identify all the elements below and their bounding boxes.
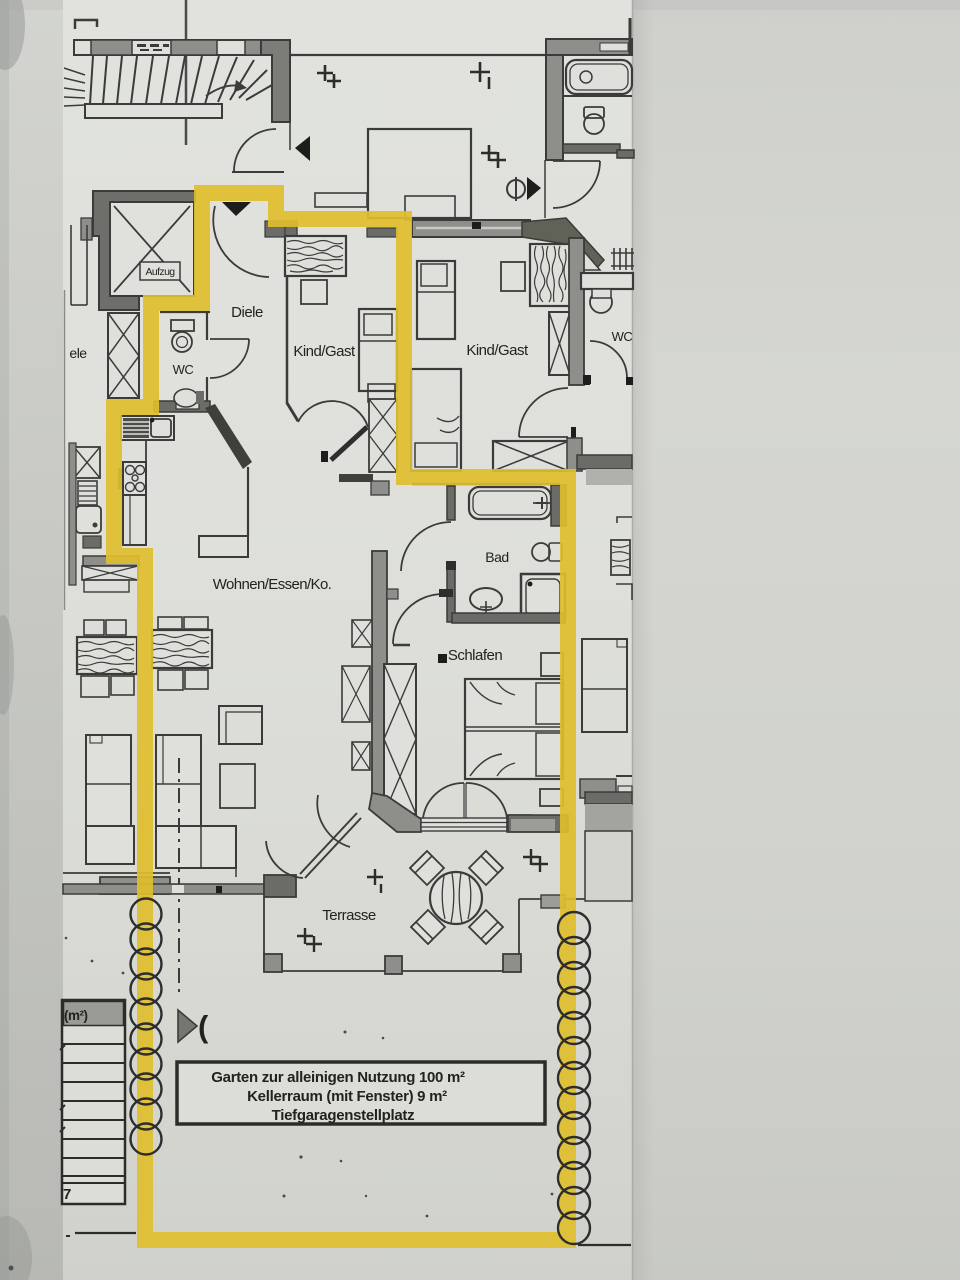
svg-text:Diele: Diele xyxy=(231,304,263,321)
svg-text:WC: WC xyxy=(173,362,194,377)
svg-text:Bad: Bad xyxy=(485,549,508,565)
svg-text:WC: WC xyxy=(612,329,633,344)
svg-text:ele: ele xyxy=(69,345,87,361)
svg-text:Kellerraum (mit Fenster) 9 m²: Kellerraum (mit Fenster) 9 m² xyxy=(247,1088,447,1105)
svg-text:Kind/Gast: Kind/Gast xyxy=(293,343,356,360)
svg-text:Wohnen/Essen/Ko.: Wohnen/Essen/Ko. xyxy=(213,576,332,593)
svg-text:Kind/Gast: Kind/Gast xyxy=(466,342,529,359)
svg-text:(m²): (m²) xyxy=(64,1008,88,1023)
svg-text:7: 7 xyxy=(63,1186,71,1203)
svg-text:Garten zur alleinigen Nutzung: Garten zur alleinigen Nutzung 100 m² xyxy=(211,1069,465,1086)
svg-text:(: ( xyxy=(198,1009,209,1044)
svg-text:Tiefgaragenstellplatz: Tiefgaragenstellplatz xyxy=(272,1107,415,1124)
svg-text:Schlafen: Schlafen xyxy=(448,647,503,664)
svg-text:Aufzug: Aufzug xyxy=(145,266,175,278)
svg-text:Terrasse: Terrasse xyxy=(322,907,376,924)
